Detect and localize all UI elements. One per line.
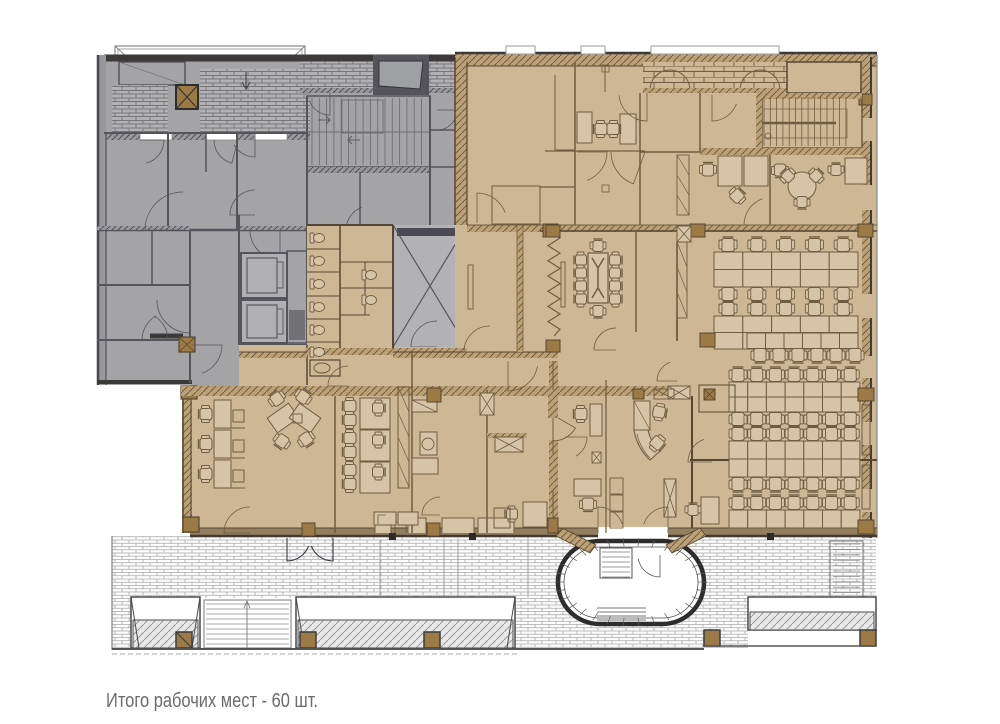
svg-text:Итого рабочих мест - 60 шт.: Итого рабочих мест - 60 шт. [106,690,318,712]
